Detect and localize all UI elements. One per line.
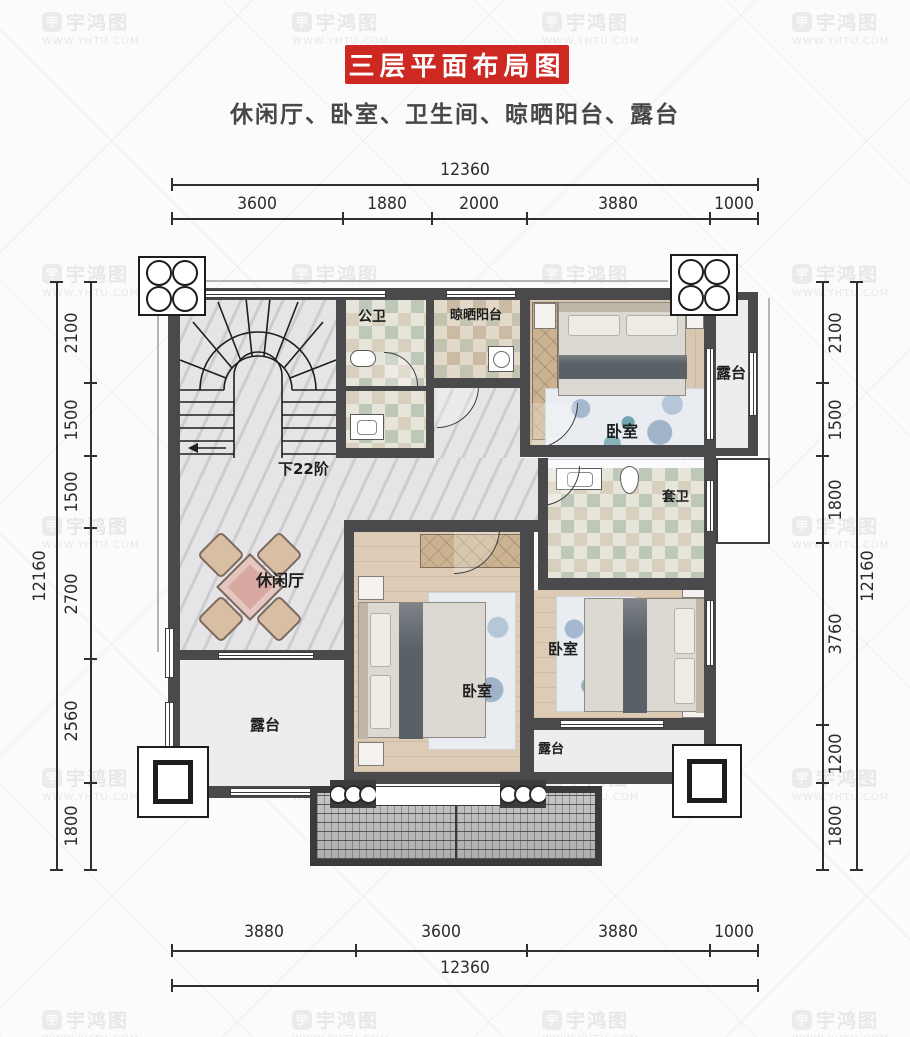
- washer-drum-icon: [493, 351, 510, 368]
- exterior-box: [716, 458, 770, 544]
- watermark: 宇宇鸿图WWW.YHTU.COM: [542, 8, 692, 47]
- corridor-floor: [336, 458, 538, 520]
- [object: [180, 360, 226, 378]
- [object: [264, 298, 270, 356]
- dim-bottom-seg: 3880: [227, 922, 301, 942]
- window: [165, 628, 174, 678]
- corner-column: [687, 759, 727, 803]
- dim-bottom-seg: 3600: [404, 922, 478, 942]
- tickv: [431, 212, 433, 225]
- room-label-leisure-hall: 休闲厅: [256, 567, 304, 591]
- tickv: [757, 979, 759, 992]
- wall: [336, 296, 346, 458]
- c: [359, 785, 377, 804]
- [object: [290, 360, 336, 378]
- watermark-brand: 宇鸿图: [66, 764, 129, 791]
- watermark-brand: 宇鸿图: [566, 8, 629, 35]
- watermark: 宇宇鸿图WWW.YHTU.COM: [292, 1006, 442, 1037]
- ccl: [146, 286, 172, 312]
- nightstand: [534, 303, 556, 329]
- watermark: 宇宇鸿图WWW.YHTU.COM: [792, 512, 910, 551]
- dim-left-seg: 2700: [62, 566, 82, 623]
- watermark-brand: 宇鸿图: [66, 260, 129, 287]
- wall: [426, 296, 434, 458]
- eave-line: [157, 300, 159, 652]
- tickh: [850, 281, 863, 283]
- tickh: [816, 869, 829, 871]
- page-title: 三层平面布局图: [345, 45, 569, 84]
- tickv: [757, 178, 759, 191]
- window: [560, 720, 664, 728]
- tickv: [171, 212, 173, 225]
- watermark-logo-icon: 宇: [792, 1010, 812, 1030]
- dim-top-total: 12360: [419, 160, 511, 180]
- watermark-logo-icon: 宇: [42, 768, 62, 788]
- tickv: [355, 944, 357, 957]
- blanket: [399, 603, 423, 739]
- window: [446, 290, 516, 298]
- dim-right-total: 12160: [858, 548, 878, 605]
- room-label-terrace-left: 露台: [250, 714, 280, 735]
- tickv: [526, 212, 528, 225]
- wm-row: 宇宇鸿图: [42, 8, 192, 35]
- blanket: [559, 355, 687, 379]
- dim-right-seg: 2100: [826, 305, 846, 362]
- tickh: [84, 527, 97, 529]
- corner-column: [670, 254, 738, 316]
- tickv: [171, 178, 173, 191]
- watermark-logo-icon: 宇: [792, 516, 812, 536]
- corner-column: [153, 760, 193, 804]
- window: [218, 652, 314, 659]
- room-label-terrace-right: 露台: [716, 362, 746, 383]
- dim-bottom-seg: 3880: [581, 922, 655, 942]
- corner-column: [138, 256, 206, 316]
- dim-bottom-total: 12360: [419, 958, 511, 978]
- [object: [275, 302, 298, 361]
- watermark-brand: 宇鸿图: [316, 1006, 379, 1033]
- tickh: [50, 281, 63, 283]
- wall: [520, 296, 530, 457]
- dim-line: [56, 282, 58, 870]
- wm-row: 宇宇鸿图: [292, 260, 442, 287]
- eave-line: [768, 298, 770, 458]
- watermark-url: WWW.YHTU.COM: [42, 36, 192, 47]
- [object: [200, 332, 316, 390]
- wm-row: 宇宇鸿图: [292, 8, 442, 35]
- floor-plan-page: 宇宇鸿图WWW.YHTU.COM宇宇鸿图WWW.YHTU.COM宇宇鸿图WWW.…: [0, 0, 910, 1037]
- tickv: [709, 212, 711, 225]
- wall: [538, 458, 548, 588]
- tickh: [816, 542, 829, 544]
- watermark-logo-icon: 宇: [42, 1010, 62, 1030]
- watermark-brand: 宇鸿图: [66, 1006, 129, 1033]
- pillow: [674, 658, 695, 704]
- c: [529, 785, 547, 804]
- watermark-brand: 宇鸿图: [316, 8, 379, 35]
- watermark: 宇宇鸿图WWW.YHTU.COM: [542, 1006, 692, 1037]
- watermark-url: WWW.YHTU.COM: [792, 36, 910, 47]
- wm-row: 宇宇鸿图: [792, 512, 910, 539]
- eave-line: [206, 280, 668, 282]
- tickh: [816, 455, 829, 457]
- pillow: [370, 675, 391, 729]
- dim-line: [172, 218, 758, 220]
- dim-right-seg: 1200: [826, 726, 846, 783]
- wall: [346, 386, 426, 391]
- [object: [246, 298, 252, 356]
- [object: [188, 443, 198, 453]
- [object: [218, 302, 241, 361]
- wm-row: 宇宇鸿图: [542, 8, 692, 35]
- watermark-brand: 宇鸿图: [66, 8, 129, 35]
- wm-row: 宇宇鸿图: [792, 8, 910, 35]
- dim-top-seg: 1880: [350, 194, 424, 214]
- [object: [234, 352, 282, 458]
- bathtub: [350, 350, 376, 367]
- watermark-logo-icon: 宇: [42, 12, 62, 32]
- pillow: [626, 315, 678, 336]
- wm-row: 宇宇鸿图: [792, 1006, 910, 1033]
- dim-left-total: 12160: [30, 548, 50, 605]
- dim-bottom-seg: 1000: [697, 922, 771, 942]
- dim-left-seg: 1500: [62, 464, 82, 521]
- room-label-drying-balcony: 晾晒阳台: [450, 304, 502, 323]
- watermark-brand: 宇鸿图: [816, 1006, 879, 1033]
- bed: [558, 302, 686, 396]
- window: [706, 600, 714, 666]
- watermark-url: WWW.YHTU.COM: [792, 288, 910, 299]
- pillow: [568, 315, 620, 336]
- tickv: [757, 944, 759, 957]
- watermark-url: WWW.YHTU.COM: [792, 792, 910, 803]
- ccl: [678, 285, 704, 311]
- room-label-bedroom-center: 卧室: [462, 680, 492, 701]
- ccl: [704, 285, 730, 311]
- dim-right-seg: 1800: [826, 798, 846, 855]
- watermark-brand: 宇鸿图: [566, 260, 629, 287]
- watermark: 宇宇鸿图WWW.YHTU.COM: [792, 260, 910, 299]
- tickv: [757, 212, 759, 225]
- dim-right-seg: 1500: [826, 392, 846, 449]
- tickh: [50, 869, 63, 871]
- ccl: [678, 259, 704, 285]
- column-cluster: [500, 780, 546, 808]
- window: [706, 348, 714, 440]
- watermark-logo-icon: 宇: [42, 516, 62, 536]
- watermark: 宇宇鸿图WWW.YHTU.COM: [292, 8, 442, 47]
- dim-top-seg: 1000: [697, 194, 771, 214]
- tickh: [816, 382, 829, 384]
- dim-top-seg: 2000: [442, 194, 516, 214]
- watermark-logo-icon: 宇: [292, 12, 312, 32]
- tickh: [816, 281, 829, 283]
- room-label-public-bath: 公卫: [358, 306, 386, 326]
- dim-line: [172, 184, 758, 186]
- watermark-logo-icon: 宇: [792, 12, 812, 32]
- watermark-logo-icon: 宇: [792, 768, 812, 788]
- watermark-logo-icon: 宇: [792, 264, 812, 284]
- nightstand: [358, 576, 384, 600]
- watermark: 宇宇鸿图WWW.YHTU.COM: [792, 8, 910, 47]
- headboard: [559, 303, 687, 312]
- tickh: [84, 869, 97, 871]
- pillow: [674, 608, 695, 654]
- ccl: [172, 286, 198, 312]
- headboard: [359, 603, 368, 739]
- dim-left-seg: 2100: [62, 305, 82, 362]
- tickh: [84, 658, 97, 660]
- wall: [538, 578, 716, 590]
- dim-right-seg: 1800: [826, 472, 846, 529]
- dim-line: [172, 950, 758, 952]
- room-label-ensuite-bath: 套卫: [662, 485, 689, 505]
- pillow: [370, 613, 391, 667]
- window: [706, 480, 714, 532]
- sink-bowl: [357, 420, 377, 435]
- room-label-bedroom-right: 卧室: [548, 638, 578, 659]
- ccl: [146, 260, 172, 286]
- window: [198, 290, 386, 298]
- window: [749, 352, 757, 416]
- tickh: [84, 782, 97, 784]
- wm-row: 宇宇鸿图: [792, 764, 910, 791]
- tickv: [526, 944, 528, 957]
- ccl: [704, 259, 730, 285]
- watermark: 宇宇鸿图WWW.YHTU.COM: [42, 8, 192, 47]
- dim-line: [172, 985, 758, 987]
- wall: [336, 448, 426, 458]
- [object: [193, 322, 232, 368]
- [object: [284, 322, 323, 368]
- wall: [344, 520, 354, 784]
- page-subtitle: 休闲厅、卧室、卫生间、晾晒阳台、露台: [155, 95, 755, 129]
- watermark: 宇宇鸿图WWW.YHTU.COM: [792, 764, 910, 803]
- bay-window: [356, 786, 524, 806]
- wm-row: 宇宇鸿图: [42, 1006, 192, 1033]
- watermark-logo-icon: 宇: [542, 1010, 562, 1030]
- watermark-brand: 宇鸿图: [316, 260, 379, 287]
- nightstand: [358, 742, 384, 766]
- ccl: [172, 260, 198, 286]
- bed: [358, 602, 486, 738]
- watermark-url: WWW.YHTU.COM: [792, 540, 910, 551]
- wall: [344, 520, 538, 532]
- staircase: [180, 298, 336, 458]
- dim-left-seg: 2560: [62, 693, 82, 750]
- wm-row: 宇宇鸿图: [292, 1006, 442, 1033]
- dim-left-seg: 1800: [62, 798, 82, 855]
- bed: [584, 598, 704, 712]
- tickh: [84, 281, 97, 283]
- room-label-bedroom-top: 卧室: [606, 418, 638, 442]
- watermark: 宇宇鸿图WWW.YHTU.COM: [42, 1006, 192, 1037]
- watermark-logo-icon: 宇: [292, 1010, 312, 1030]
- tickv: [171, 979, 173, 992]
- stair-direction-note: 下22阶: [278, 458, 329, 479]
- dim-left-seg: 1500: [62, 392, 82, 449]
- dim-right-seg: 3760: [826, 606, 846, 663]
- tickv: [171, 944, 173, 957]
- wall: [716, 448, 758, 456]
- tickv: [342, 212, 344, 225]
- tickh: [84, 455, 97, 457]
- [object: [180, 298, 336, 458]
- watermark-logo-icon: 宇: [542, 12, 562, 32]
- blanket: [623, 599, 647, 713]
- watermark-brand: 宇鸿图: [566, 1006, 629, 1033]
- tickh: [84, 382, 97, 384]
- tickv: [709, 944, 711, 957]
- wall: [426, 378, 528, 388]
- tickh: [850, 869, 863, 871]
- room-label-terrace-bottom: 露台: [538, 738, 564, 757]
- dim-top-seg: 3880: [581, 194, 655, 214]
- wall: [520, 445, 716, 457]
- watermark: 宇宇鸿图WWW.YHTU.COM: [792, 1006, 910, 1037]
- watermark-brand: 宇鸿图: [816, 8, 879, 35]
- wm-row: 宇宇鸿图: [542, 1006, 692, 1033]
- wall: [520, 532, 534, 784]
- column-cluster: [330, 780, 376, 808]
- dim-top-seg: 3600: [220, 194, 294, 214]
